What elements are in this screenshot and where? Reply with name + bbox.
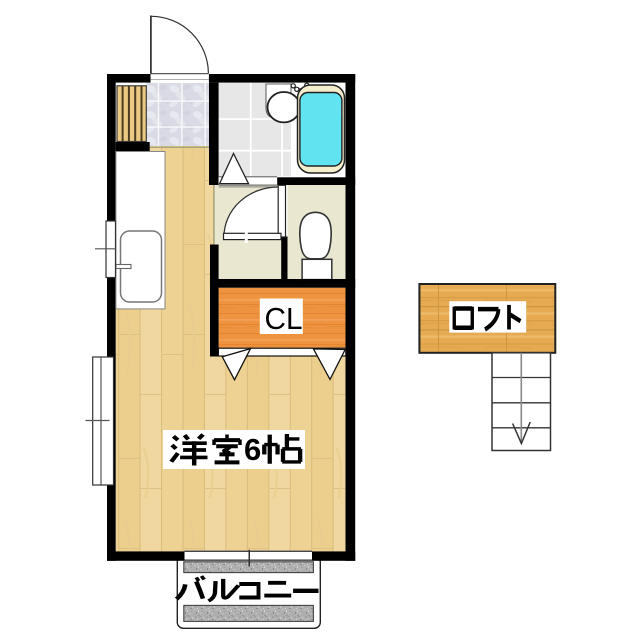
svg-text:6: 6 — [244, 432, 261, 467]
svg-text:CL: CL — [265, 302, 303, 336]
